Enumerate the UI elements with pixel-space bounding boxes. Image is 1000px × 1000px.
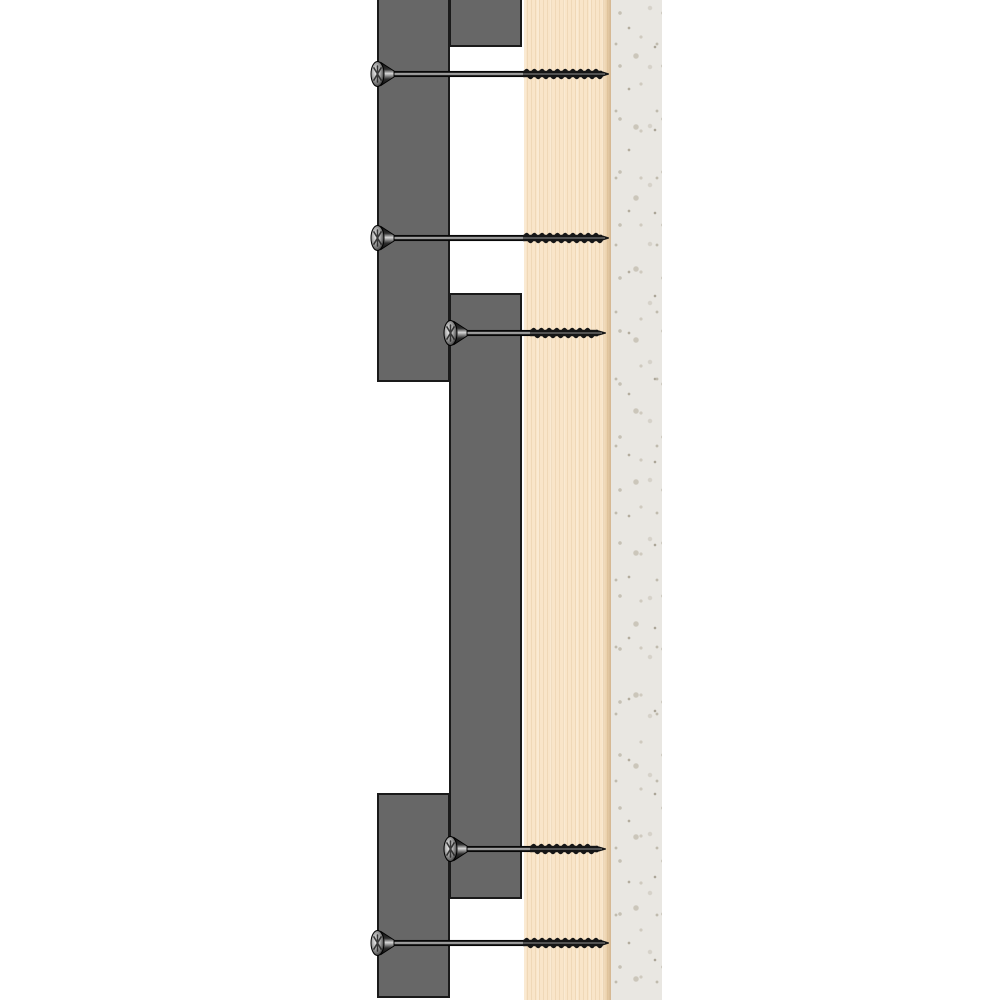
board-edge-shade [602, 0, 611, 1000]
support-batten [377, 793, 450, 998]
wall-layer [611, 0, 662, 1000]
diagram-canvas [0, 0, 1000, 1000]
support-batten [377, 0, 450, 382]
support-batten [449, 0, 522, 47]
timber-board-layer [524, 0, 611, 1000]
support-batten [449, 293, 522, 899]
